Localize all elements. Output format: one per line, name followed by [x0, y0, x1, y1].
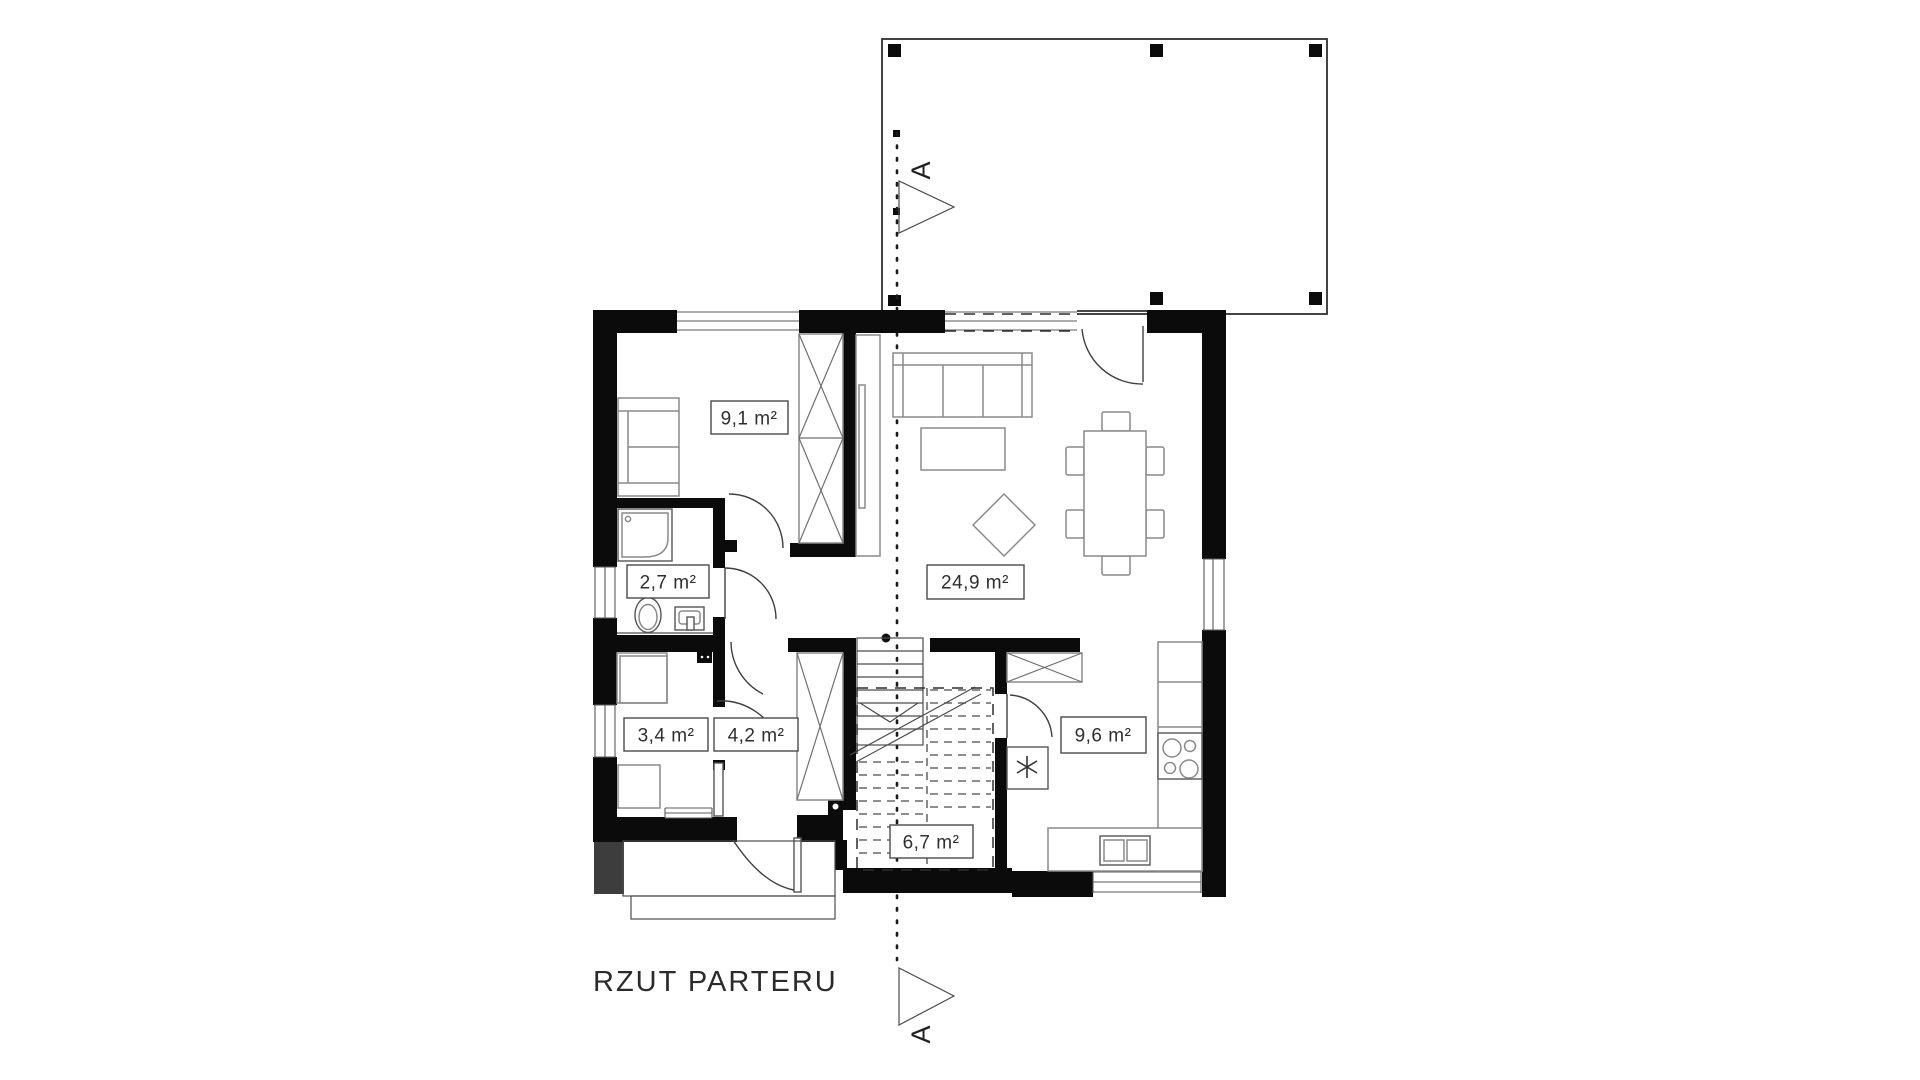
kitchen-sink: [1100, 836, 1150, 865]
cooktop: [1158, 733, 1202, 779]
window-bottom-kitchen: [1093, 871, 1201, 893]
porch-slab: [623, 841, 835, 896]
wall-left-middle: [593, 618, 617, 705]
door-arc-bedroom: [729, 494, 783, 548]
cabinet: [617, 653, 667, 703]
wall-bottom-left: [593, 817, 737, 842]
terrace-outline: [882, 39, 1327, 314]
stairs-break-line: [850, 687, 981, 762]
terrace-post: [888, 295, 901, 306]
page-title: RZUT PARTERU: [593, 966, 838, 998]
terrace-post: [1150, 44, 1163, 57]
living-sofa: [893, 353, 1032, 417]
dining-chair: [1102, 412, 1130, 431]
door-arc-entrance: [733, 840, 794, 890]
label-vestibule: 4,2 m²: [714, 718, 798, 751]
wall-right-upper: [1202, 310, 1226, 559]
terrace-post: [1150, 292, 1163, 305]
wall-block-meter: [697, 652, 712, 663]
window-right-dining: [1203, 559, 1225, 630]
window-terrace-slider: [945, 311, 1077, 332]
door-post-dot: [833, 804, 839, 810]
door-arc-terrace: [1082, 329, 1143, 384]
living-furniture: [893, 353, 1164, 575]
floor-plan-drawing: A A: [0, 0, 1920, 1080]
porch-step: [631, 896, 835, 919]
label-living-room-text: 24,9 m²: [941, 573, 1009, 594]
wall-bottom-kitchen: [1012, 871, 1093, 897]
wall-bottom-jog: [835, 840, 847, 870]
meter-dot: [707, 656, 710, 659]
label-wardrobe-room-text: 3,4 m²: [638, 726, 695, 747]
window-left-bathroom: [594, 567, 616, 618]
label-kitchen-text: 9,6 m²: [1075, 726, 1132, 747]
meter-dot: [701, 656, 704, 659]
label-vestibule-text: 4,2 m²: [728, 726, 785, 747]
desk: [618, 765, 660, 808]
wall-stub-bedroom-door: [723, 540, 737, 552]
window-bottom-wardrobe-room: [665, 808, 712, 818]
terrace-post: [1309, 292, 1322, 305]
wall-living-kitchen: [930, 638, 1080, 652]
door-arc-kitchen: [1010, 695, 1052, 737]
door-leaf-entrance: [794, 838, 801, 892]
dining-chair: [1066, 447, 1084, 475]
section-arrow-bottom: [899, 968, 954, 1025]
label-stairs-text: 6,7 m²: [903, 833, 960, 854]
terrace-post: [1309, 44, 1322, 57]
stairs-direction-chevron: [860, 703, 918, 722]
window-bedroom-top: [677, 311, 799, 332]
label-bathroom: 2,7 m²: [627, 565, 709, 598]
dining-set: [1066, 412, 1164, 575]
dining-chair: [1102, 556, 1130, 575]
wall-bathroom-top: [617, 498, 725, 508]
living-sideboard: [856, 335, 880, 556]
wall-right-lower: [1202, 630, 1226, 897]
wall-vestibule-stairs: [843, 638, 856, 810]
dining-chair: [1146, 510, 1164, 538]
wall-kitchen-left-upper: [995, 652, 1007, 694]
coffee-table: [921, 428, 1005, 470]
terrace-post: [888, 44, 901, 57]
wall-bedroom-living: [842, 332, 856, 557]
door-arc-vestibule: [731, 642, 763, 694]
dining-chair: [1066, 510, 1084, 538]
window-left-wardrobe-room: [594, 705, 616, 757]
label-stairs: 6,7 m²: [890, 825, 973, 858]
terrace: [882, 39, 1327, 314]
fridge: [1007, 747, 1048, 789]
label-bedroom-text: 9,1 m²: [721, 409, 778, 430]
entrance-porch: [623, 841, 835, 919]
kitchen-furniture: [1007, 642, 1202, 871]
door-leaf-wardrobe-room: [714, 763, 723, 816]
label-bathroom-text: 2,7 m²: [640, 573, 697, 594]
label-bedroom: 9,1 m²: [711, 401, 788, 434]
label-kitchen: 9,6 m²: [1061, 717, 1146, 753]
porch-pier-left: [594, 842, 624, 894]
wall-bathroom-right: [713, 498, 725, 568]
dining-chair: [1146, 447, 1164, 475]
section-label-bottom: A: [906, 1024, 936, 1043]
stairs-treads-solid: [857, 651, 923, 729]
wall-bathroom-bottom: [617, 635, 725, 652]
wall-bottom-stairs: [843, 868, 1012, 893]
wall-wardrobe-vestibule: [713, 652, 725, 707]
stairs-treads-dashed-right: [930, 690, 991, 807]
bedroom-closet: [799, 334, 843, 543]
floor-plan-page: A A: [0, 0, 1920, 1080]
section-arrow-top: [899, 181, 954, 233]
wall-left-upper: [593, 310, 617, 567]
sink-tap: [687, 617, 694, 630]
wall-kitchen-left-lower: [995, 738, 1007, 873]
label-living-room: 24,9 m²: [927, 565, 1024, 599]
rug-diamond: [973, 494, 1035, 556]
wall-bottom-entrance-right: [797, 815, 843, 842]
vestibule-furniture: [797, 653, 843, 800]
door-arc-bathroom: [725, 568, 776, 619]
wall-top-middle: [799, 310, 945, 333]
section-label-top: A: [906, 160, 936, 179]
dining-table: [1084, 431, 1146, 556]
label-wardrobe-room: 3,4 m²: [624, 718, 708, 751]
